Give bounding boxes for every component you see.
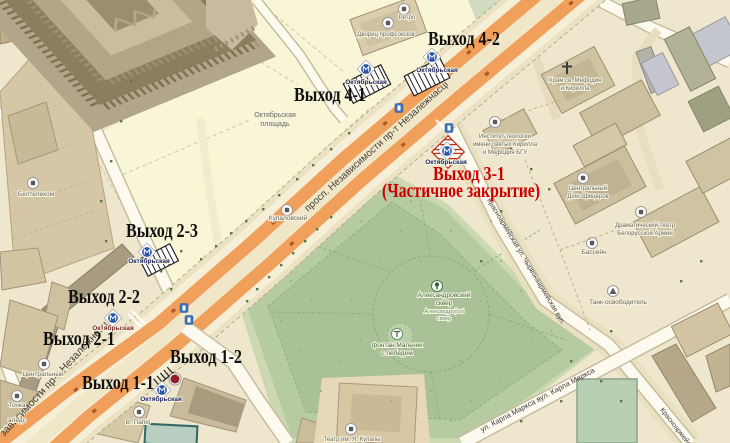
svg-text:сквер: сквер xyxy=(437,316,451,322)
svg-text:Белтелеком: Белтелеком xyxy=(18,191,55,198)
svg-text:Александроўскi: Александроўскi xyxy=(424,308,464,315)
svg-text:Выход 4-1: Выход 4-1 xyxy=(294,85,366,106)
svg-text:с лебедем: с лебедем xyxy=(381,349,413,357)
svg-text:Дом офицеров: Дом офицеров xyxy=(567,194,608,200)
svg-text:Институт теологии: Институт теологии xyxy=(479,134,531,140)
svg-text:Театр им. Я. Купалы: Театр им. Я. Купалы xyxy=(324,437,381,443)
svg-text:и Мефодия БГУ: и Мефодия БГУ xyxy=(483,150,528,156)
svg-text:Белорусской Армии: Белорусской Армии xyxy=(617,230,672,237)
svg-text:Выход 2-2: Выход 2-2 xyxy=(68,287,140,308)
svg-text:Купаловский: Купаловский xyxy=(269,214,308,222)
svg-text:В. Папiо: В. Папiо xyxy=(126,419,151,426)
svg-text:(Частичное закрытие): (Частичное закрытие) xyxy=(382,181,540,202)
svg-text:Точка: Точка xyxy=(9,402,26,409)
svg-text:Ретро: Ретро xyxy=(399,15,416,21)
svg-text:Храм св. Мефодия: Храм св. Мефодия xyxy=(549,78,602,84)
svg-text:Центральный: Центральный xyxy=(569,185,607,192)
svg-text:Драматический театр: Драматический театр xyxy=(615,222,676,229)
svg-text:и Кирилла: и Кирилла xyxy=(561,86,591,92)
svg-text:Александровский: Александровский xyxy=(418,291,471,299)
svg-text:Бассейн: Бассейн xyxy=(581,248,607,256)
svg-text:Выход 2-1: Выход 2-1 xyxy=(43,329,115,350)
svg-text:Октябрьская: Октябрьская xyxy=(416,66,458,74)
svg-text:Октябрьская: Октябрьская xyxy=(140,395,182,403)
svg-text:альдс: альдс xyxy=(8,417,27,424)
svg-text:Центральный: Центральный xyxy=(22,370,64,378)
svg-text:Выход 1-1: Выход 1-1 xyxy=(82,373,154,394)
svg-text:Выход 2-3: Выход 2-3 xyxy=(126,221,198,242)
svg-text:Танк-освободитель: Танк-освободитель xyxy=(589,298,647,306)
svg-text:Выход 4-2: Выход 4-2 xyxy=(428,29,500,50)
svg-text:Выход 1-2: Выход 1-2 xyxy=(170,347,242,368)
svg-text:Октябрьская: Октябрьская xyxy=(254,111,296,119)
svg-text:фонтан Мальчик: фонтан Мальчик xyxy=(372,342,422,349)
svg-text:площадь: площадь xyxy=(260,121,290,128)
svg-text:Октябрьская: Октябрьская xyxy=(128,257,170,265)
svg-text:Дворец профсоюзов: Дворец профсоюзов xyxy=(357,32,414,38)
svg-text:сквер: сквер xyxy=(436,300,453,307)
svg-text:имени святых Кирилла: имени святых Кирилла xyxy=(473,142,538,148)
